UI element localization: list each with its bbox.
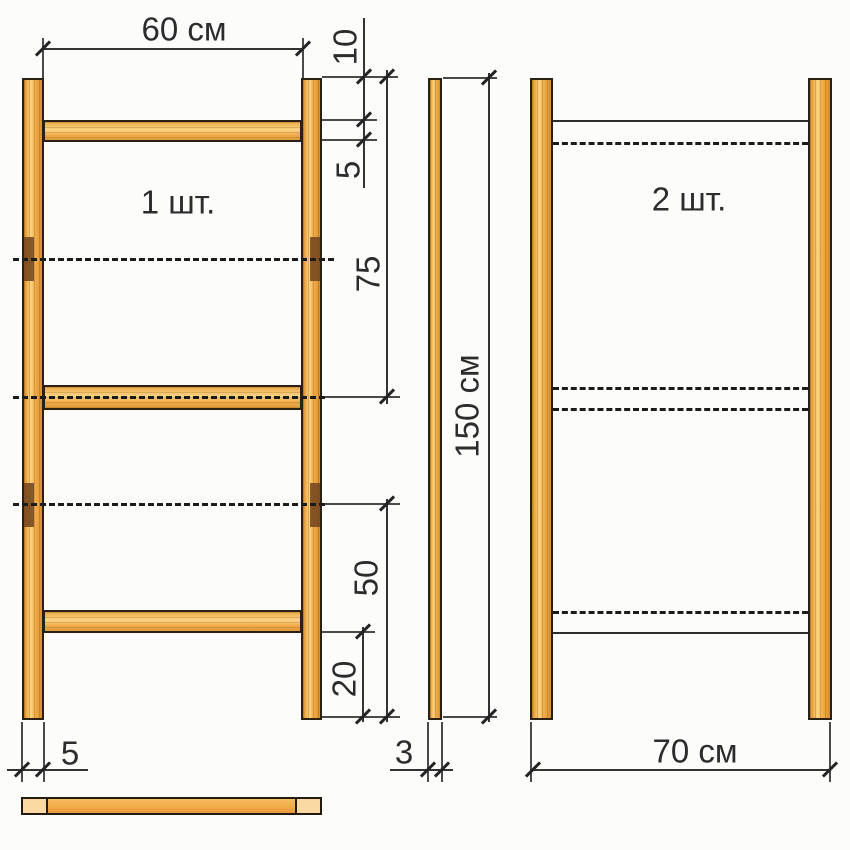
frame2-quantity-label: 2 шт. — [652, 183, 727, 216]
frame2-middle-rail-hidden-line-b — [553, 408, 808, 411]
frame1-bottom-rail — [43, 610, 302, 633]
loose-rail-left-cap — [23, 799, 46, 813]
loose-rail-piece — [21, 797, 322, 815]
frame2-middle-rail-hidden-line-a — [553, 387, 808, 390]
dim75-line — [386, 70, 388, 404]
dim150-label: 150 см — [451, 354, 484, 457]
dim60-line — [43, 48, 303, 50]
rail-bottom-extension — [322, 139, 377, 141]
rail-top-extension — [322, 119, 377, 121]
frame2-bottom-rail-edge-line — [553, 632, 808, 634]
frame1-lower-hidden-rail-line — [13, 503, 325, 506]
dim75-label: 75 — [352, 256, 385, 293]
trellis-drawing: 1 шт. 60 см 10 5 75 50 20 5 150 см — [0, 0, 850, 850]
dim3-left-extension — [427, 722, 429, 782]
frame1-right-post — [301, 78, 322, 720]
dim50-label: 50 — [350, 560, 383, 597]
frame2-top-rail-edge-line — [553, 120, 808, 122]
frame1-quantity-label: 1 шт. — [141, 186, 216, 219]
loose-rail-right-cap — [297, 799, 320, 813]
dim60-label: 60 см — [141, 13, 226, 46]
dim3-right-extension — [441, 722, 443, 782]
dim20-label: 20 — [328, 661, 361, 698]
dim5post-label: 5 — [61, 737, 79, 770]
bottom-rail-extension — [322, 631, 375, 633]
frame1-top-rail — [43, 120, 302, 142]
frame1-upper-hidden-rail-line — [13, 258, 334, 261]
dim70-label: 70 см — [652, 735, 737, 768]
frame2-top-rail-hidden-line — [553, 142, 808, 145]
dim10-label: 10 — [329, 29, 362, 66]
dim5post-left-extension — [21, 722, 23, 782]
dim5post-right-extension — [43, 722, 45, 782]
frame2-bottom-rail-hidden-line — [553, 611, 808, 614]
dim5-rail-label: 5 — [332, 161, 365, 179]
loose-rail-body — [46, 799, 297, 813]
dim150-line — [488, 73, 490, 722]
frame1-left-post — [22, 78, 44, 720]
dim50-line — [386, 499, 388, 722]
dim3-label: 3 — [395, 736, 413, 769]
frame2-right-post — [808, 78, 832, 720]
dim70-right-extension — [829, 722, 831, 782]
frame1-middle-hidden-rail-line — [13, 396, 325, 399]
side-view-post — [428, 78, 442, 720]
frame2-left-post — [530, 78, 553, 720]
